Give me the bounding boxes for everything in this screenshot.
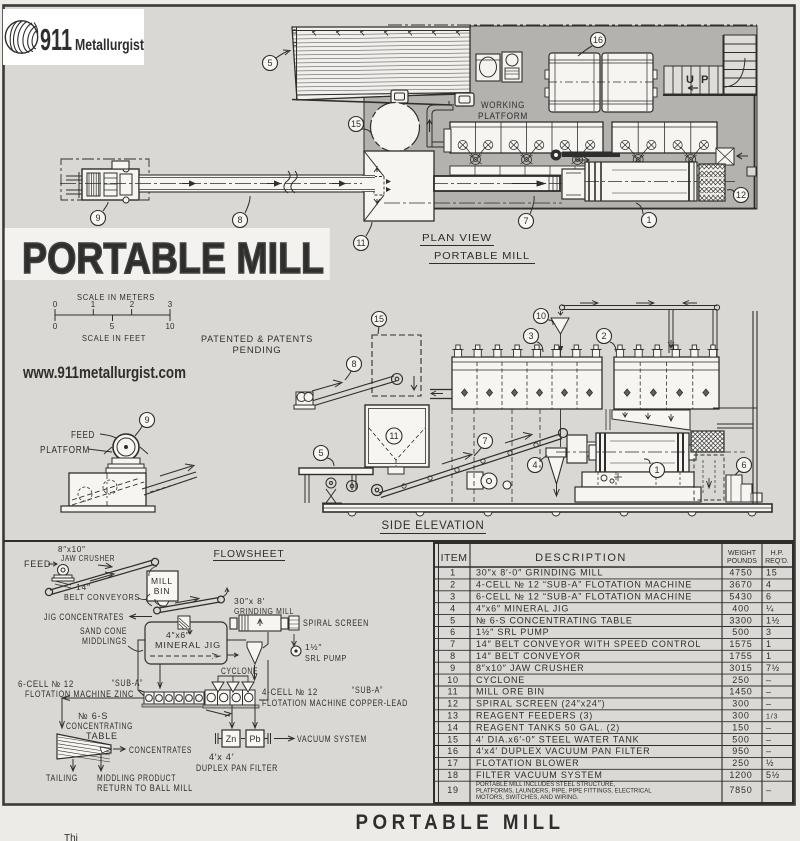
svg-text:–: – (766, 746, 772, 756)
svg-text:1½″ SRL PUMP: 1½″ SRL PUMP (476, 627, 549, 637)
svg-text:5½: 5½ (766, 770, 780, 780)
svg-text:FEED: FEED (71, 430, 95, 441)
svg-text:2: 2 (450, 580, 456, 590)
svg-text:4: 4 (450, 603, 456, 613)
svg-text:4′ DIA.x6′-0″ STEEL WATER TANK: 4′ DIA.x6′-0″ STEEL WATER TANK (476, 734, 639, 744)
svg-text:250: 250 (732, 675, 749, 685)
svg-text:16: 16 (447, 746, 459, 756)
svg-text:MIDDLINGS: MIDDLINGS (82, 636, 127, 646)
svg-text:JIG CONCENTRATES: JIG CONCENTRATES (44, 612, 124, 622)
svg-text:11: 11 (448, 687, 459, 697)
svg-text:0: 0 (53, 322, 58, 331)
svg-text:RETURN TO BALL MILL: RETURN TO BALL MILL (97, 783, 193, 793)
svg-text:17: 17 (447, 758, 459, 768)
svg-text:18: 18 (447, 770, 459, 780)
svg-text:½: ½ (766, 758, 774, 768)
svg-text:SAND CONE: SAND CONE (80, 626, 127, 636)
svg-text:PLATFORM: PLATFORM (40, 445, 90, 456)
svg-text:8″x10″ JAW CRUSHER: 8″x10″ JAW CRUSHER (476, 663, 584, 673)
svg-text:400: 400 (732, 603, 749, 613)
svg-text:6: 6 (766, 592, 772, 602)
svg-text:3015: 3015 (729, 663, 752, 673)
svg-text:15: 15 (447, 734, 459, 744)
svg-text:10: 10 (536, 311, 546, 321)
svg-text:4750: 4750 (729, 568, 752, 578)
svg-text:9: 9 (95, 213, 100, 223)
svg-text:PLAN VIEW: PLAN VIEW (422, 232, 492, 244)
svg-text:–: – (766, 675, 772, 685)
svg-text:2: 2 (601, 331, 606, 341)
svg-text:1/3: 1/3 (766, 714, 778, 721)
svg-text:4: 4 (532, 460, 537, 470)
svg-text:250: 250 (732, 758, 749, 768)
svg-text:¼: ¼ (766, 603, 774, 613)
svg-text:CYCLONE: CYCLONE (476, 675, 525, 685)
svg-text:7½: 7½ (766, 663, 780, 673)
svg-text:500: 500 (732, 627, 749, 637)
svg-text:MINERAL JIG: MINERAL JIG (155, 640, 221, 650)
svg-text:4-CELL № 12 “SUB-A” FLOTATION: 4-CELL № 12 “SUB-A” FLOTATION MACHINE (476, 580, 692, 590)
svg-text:MIDDLING PRODUCT: MIDDLING PRODUCT (97, 773, 176, 783)
svg-text:REAGENT FEEDERS (3): REAGENT FEEDERS (3) (476, 711, 593, 721)
svg-text:3: 3 (766, 627, 772, 637)
svg-text:5: 5 (110, 322, 115, 331)
svg-text:JAW CRUSHER: JAW CRUSHER (61, 553, 115, 563)
svg-text:1200: 1200 (729, 770, 752, 780)
svg-text:15: 15 (766, 568, 778, 578)
svg-text:14″: 14″ (76, 582, 91, 592)
svg-text:11: 11 (356, 238, 365, 248)
svg-text:6: 6 (450, 627, 456, 637)
svg-text:950: 950 (732, 746, 749, 756)
svg-text:REAGENT TANKS 50 GAL. (2): REAGENT TANKS 50 GAL. (2) (476, 722, 620, 732)
svg-text:CONCENTRATING: CONCENTRATING (66, 721, 133, 731)
svg-text:MILL ORE BIN: MILL ORE BIN (476, 687, 545, 697)
svg-text:REQ’D.: REQ’D. (765, 558, 789, 565)
svg-text:№ 6-S: № 6-S (78, 711, 108, 721)
svg-text:3: 3 (528, 331, 533, 341)
svg-text:7: 7 (450, 639, 456, 649)
svg-text:11: 11 (389, 431, 398, 441)
svg-text:9: 9 (144, 415, 149, 425)
svg-text:10: 10 (166, 322, 175, 331)
svg-text:P: P (701, 74, 708, 86)
svg-text:12: 12 (447, 699, 459, 709)
svg-text:WORKING: WORKING (481, 100, 525, 111)
svg-text:FLOTATION BLOWER: FLOTATION BLOWER (476, 758, 579, 768)
svg-text:9: 9 (450, 663, 456, 673)
svg-text:13: 13 (447, 711, 459, 721)
svg-text:6-CELL № 12 “SUB-A” FLOTATION: 6-CELL № 12 “SUB-A” FLOTATION MACHINE (476, 592, 692, 602)
svg-text:WEIGHT: WEIGHT (728, 550, 757, 557)
svg-text:5430: 5430 (729, 592, 752, 602)
svg-text:4′x4′ DUPLEX VACUUM PAN FILTER: 4′x4′ DUPLEX VACUUM PAN FILTER (476, 746, 650, 756)
svg-text:–: – (766, 734, 772, 744)
svg-text:14″ BELT CONVEYOR WITH SPEED C: 14″ BELT CONVEYOR WITH SPEED CONTROL (476, 639, 701, 649)
svg-text:500: 500 (732, 734, 749, 744)
svg-text:1: 1 (654, 465, 659, 475)
svg-text:SRL PUMP: SRL PUMP (305, 653, 347, 663)
svg-text:8: 8 (351, 359, 356, 369)
svg-text:30″x 8′: 30″x 8′ (234, 596, 265, 606)
svg-text:VACUUM SYSTEM: VACUUM SYSTEM (297, 734, 367, 744)
svg-text:4-CELL № 12: 4-CELL № 12 (262, 687, 318, 697)
svg-text:POUNDS: POUNDS (727, 558, 757, 565)
svg-text:PLATFORMS, LAUNDERS, PIPE, PIP: PLATFORMS, LAUNDERS, PIPE, PIPE FITTINGS… (476, 789, 652, 795)
svg-text:1755: 1755 (729, 651, 752, 661)
svg-text:FLOTATION MACHINE COPPER-LEAD: FLOTATION MACHINE COPPER-LEAD (262, 698, 408, 708)
svg-text:MOTORS, SWITCHES, AND WIRING.: MOTORS, SWITCHES, AND WIRING. (476, 795, 579, 801)
svg-text:5: 5 (267, 58, 272, 68)
svg-text:SPIRAL SCREEN: SPIRAL SCREEN (303, 618, 369, 628)
svg-text:7: 7 (482, 436, 487, 446)
svg-text:1: 1 (766, 639, 772, 649)
svg-text:SCALE IN METERS: SCALE IN METERS (77, 292, 155, 302)
svg-text:6-CELL № 12: 6-CELL № 12 (18, 679, 74, 689)
svg-text:8: 8 (450, 651, 456, 661)
svg-text:–: – (766, 785, 772, 795)
svg-text:15: 15 (374, 314, 384, 324)
svg-text:PATENTED & PATENTS: PATENTED & PATENTS (201, 334, 313, 345)
svg-text:911: 911 (40, 22, 72, 57)
svg-text:4″x6″: 4″x6″ (166, 630, 190, 640)
svg-text:–: – (766, 687, 772, 697)
svg-text:1½: 1½ (766, 615, 780, 625)
svg-text:–: – (766, 722, 772, 732)
svg-text:FILTER VACUUM SYSTEM: FILTER VACUUM SYSTEM (476, 770, 603, 780)
svg-text:PENDING: PENDING (233, 345, 282, 356)
svg-text:5: 5 (318, 448, 323, 458)
svg-text:0: 0 (53, 300, 58, 309)
svg-text:1: 1 (91, 300, 96, 309)
svg-text:3670: 3670 (729, 580, 752, 590)
svg-text:14″ BELT CONVEYOR: 14″ BELT CONVEYOR (476, 651, 581, 661)
svg-text:PLATFORM: PLATFORM (478, 111, 528, 122)
svg-text:FLOWSHEET: FLOWSHEET (214, 548, 285, 560)
svg-text:MILL: MILL (151, 576, 173, 586)
svg-text:300: 300 (732, 699, 749, 709)
svg-text:1: 1 (646, 215, 651, 225)
svg-text:SCALE IN FEET: SCALE IN FEET (82, 333, 146, 343)
svg-text:Zn: Zn (226, 734, 237, 744)
svg-text:PORTABLE MILL: PORTABLE MILL (356, 811, 565, 834)
svg-text:Pb: Pb (249, 734, 260, 744)
svg-text:4: 4 (766, 580, 772, 590)
svg-text:12: 12 (736, 190, 746, 200)
svg-text:BELT CONVEYORS: BELT CONVEYORS (64, 592, 140, 602)
svg-text:SPIRAL SCREEN (24″x24″): SPIRAL SCREEN (24″x24″) (476, 699, 605, 709)
svg-text:1½″: 1½″ (305, 642, 322, 652)
svg-text:14: 14 (447, 722, 459, 732)
svg-text:3300: 3300 (729, 615, 752, 625)
svg-text:7: 7 (523, 216, 528, 226)
svg-text:PORTABLE MILL INCLUDES STEEL S: PORTABLE MILL INCLUDES STEEL STRUCTURE, (476, 782, 615, 788)
svg-text:4′x 4′: 4′x 4′ (209, 752, 234, 762)
svg-text:DUPLEX PAN FILTER: DUPLEX PAN FILTER (196, 763, 278, 773)
svg-text:TAILING: TAILING (46, 773, 78, 783)
svg-text:3: 3 (168, 300, 173, 309)
svg-text:300: 300 (732, 711, 749, 721)
svg-text:1: 1 (766, 651, 772, 661)
svg-text:8: 8 (237, 215, 242, 225)
svg-text:№ 6-S CONCENTRATING TABLE: № 6-S CONCENTRATING TABLE (476, 615, 633, 625)
svg-text:SIDE ELEVATION: SIDE ELEVATION (382, 520, 485, 532)
svg-text:7850: 7850 (729, 785, 752, 795)
svg-text:30″x 8′-0″ GRINDING MILL: 30″x 8′-0″ GRINDING MILL (476, 568, 603, 578)
svg-text:H.P.: H.P. (771, 550, 784, 557)
svg-text:Thi: Thi (64, 833, 78, 841)
svg-text:TABLE: TABLE (86, 731, 118, 741)
svg-text:150: 150 (732, 722, 749, 732)
svg-text:U: U (686, 74, 694, 86)
svg-text:16: 16 (593, 35, 603, 45)
svg-text:“SUB-A”: “SUB-A” (112, 678, 143, 688)
svg-text:BIN: BIN (154, 586, 171, 596)
svg-text:4″x6″ MINERAL JIG: 4″x6″ MINERAL JIG (476, 603, 569, 613)
svg-text:PORTABLE MILL: PORTABLE MILL (22, 234, 324, 283)
svg-text:1575: 1575 (729, 639, 752, 649)
svg-text:5: 5 (450, 615, 456, 625)
svg-text:Metallurgist: Metallurgist (75, 37, 145, 54)
svg-text:19: 19 (447, 785, 459, 795)
svg-text:1: 1 (450, 568, 456, 578)
svg-text:PORTABLE MILL: PORTABLE MILL (434, 250, 530, 262)
svg-text:DESCRIPTION: DESCRIPTION (535, 552, 627, 564)
svg-text:15: 15 (351, 119, 361, 129)
svg-text:ITEM: ITEM (441, 552, 468, 564)
svg-text:FEED: FEED (24, 559, 51, 569)
svg-text:6: 6 (741, 460, 746, 470)
svg-text:3: 3 (450, 592, 456, 602)
svg-text:2: 2 (130, 300, 135, 309)
svg-text:“SUB-A”: “SUB-A” (352, 685, 383, 695)
svg-text:CONCENTRATES: CONCENTRATES (129, 745, 192, 755)
svg-text:–: – (766, 699, 772, 709)
svg-text:www.911metallurgist.com: www.911metallurgist.com (22, 364, 186, 382)
svg-text:10: 10 (447, 675, 459, 685)
svg-text:1450: 1450 (729, 687, 752, 697)
